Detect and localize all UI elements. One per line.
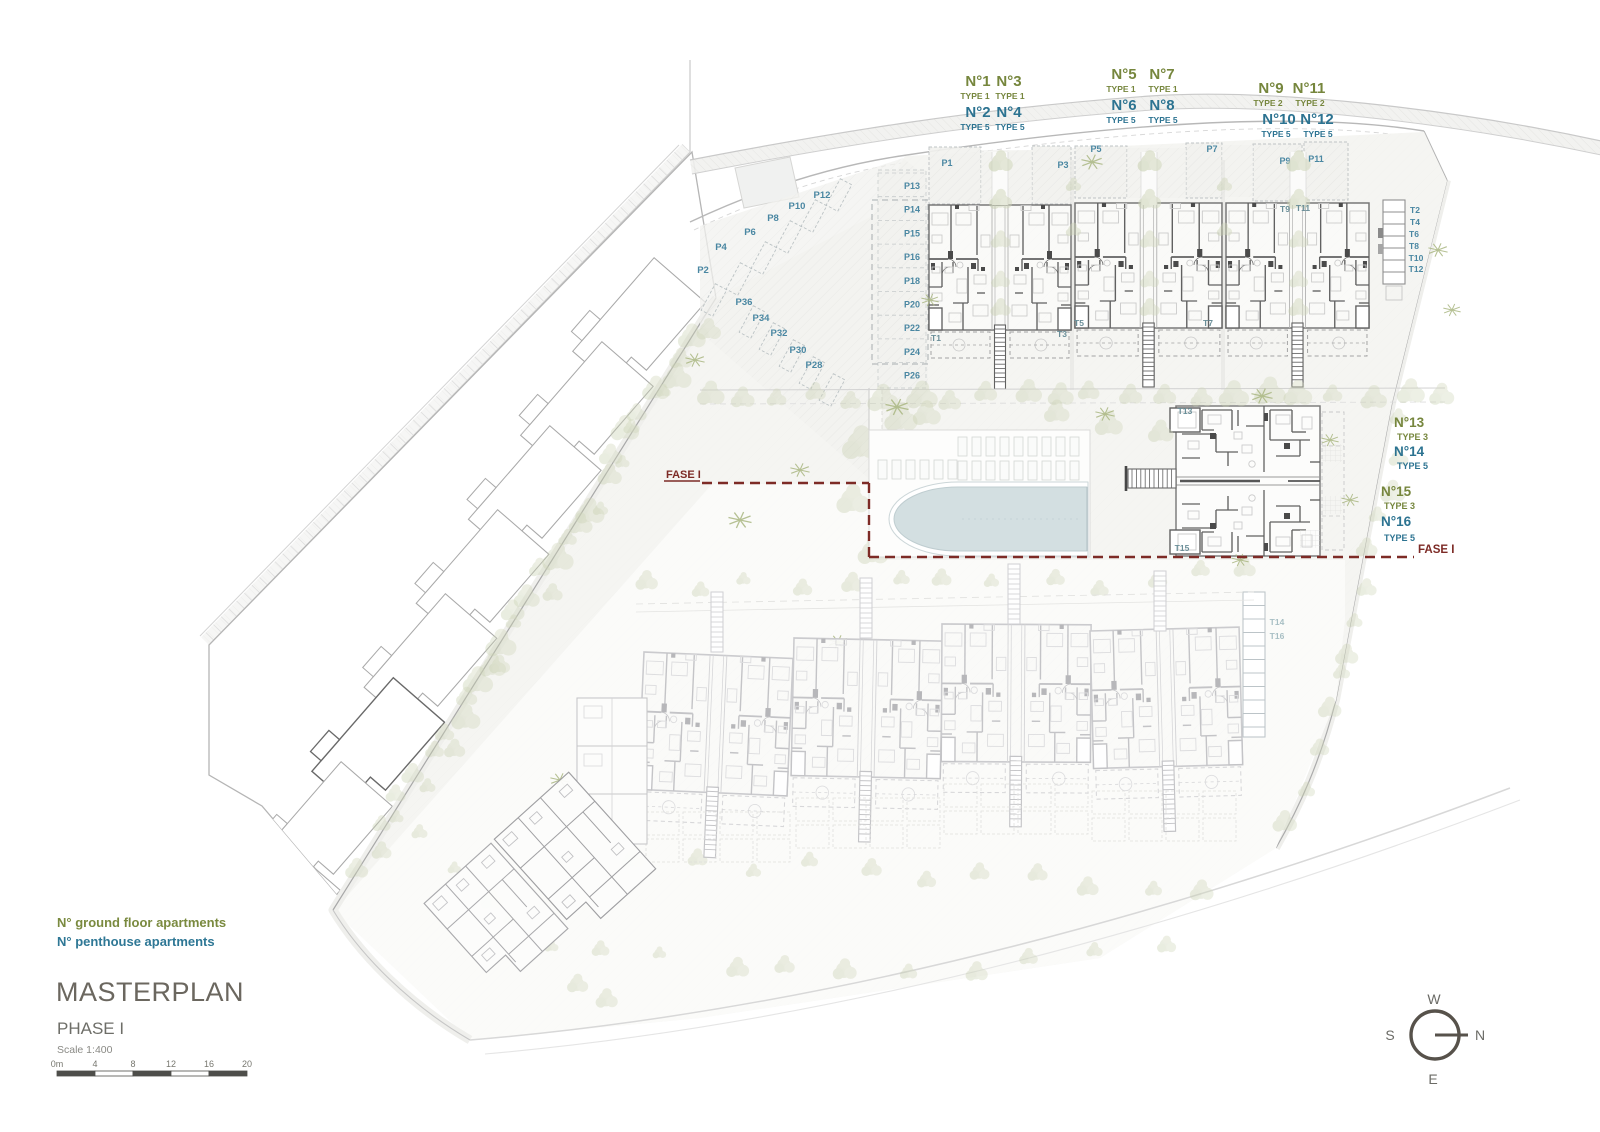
svg-text:Scale 1:400: Scale 1:400 [57, 1044, 113, 1056]
svg-text:16: 16 [204, 1059, 214, 1069]
svg-text:P5: P5 [1090, 144, 1101, 154]
svg-text:TYPE 1: TYPE 1 [960, 91, 990, 101]
svg-text:P7: P7 [1206, 144, 1217, 154]
svg-text:TYPE 1: TYPE 1 [995, 91, 1025, 101]
svg-text:8: 8 [130, 1059, 135, 1069]
svg-text:TYPE 5: TYPE 5 [995, 122, 1025, 132]
svg-text:N°11: N°11 [1293, 80, 1326, 97]
svg-text:T7: T7 [1203, 318, 1213, 328]
svg-text:P28: P28 [806, 360, 823, 371]
svg-text:TYPE 5: TYPE 5 [960, 122, 990, 132]
svg-text:P2: P2 [697, 265, 709, 276]
svg-text:T4: T4 [1410, 217, 1420, 227]
svg-text:S: S [1385, 1027, 1394, 1043]
svg-text:T11: T11 [1296, 203, 1310, 213]
svg-text:N°14: N°14 [1394, 444, 1425, 459]
svg-text:P26: P26 [904, 371, 920, 381]
svg-text:TYPE 3: TYPE 3 [1397, 432, 1428, 442]
svg-text:T9: T9 [1280, 204, 1290, 214]
svg-text:T8: T8 [1409, 241, 1419, 251]
svg-text:T13: T13 [1178, 406, 1193, 416]
svg-text:P14: P14 [904, 205, 920, 215]
svg-text:TYPE 5: TYPE 5 [1106, 115, 1136, 125]
svg-text:T12: T12 [1409, 264, 1424, 274]
svg-text:P3: P3 [1057, 160, 1068, 170]
svg-text:FASE I: FASE I [666, 469, 701, 481]
svg-text:N°6: N°6 [1111, 97, 1136, 114]
svg-text:T2: T2 [1410, 205, 1420, 215]
svg-text:P24: P24 [904, 347, 920, 357]
svg-text:PHASE I: PHASE I [57, 1019, 124, 1038]
svg-text:T14: T14 [1270, 617, 1285, 627]
svg-text:TYPE 5: TYPE 5 [1384, 533, 1415, 543]
svg-text:N°2: N°2 [965, 104, 990, 121]
svg-text:N° ground floor apartments: N° ground floor apartments [57, 915, 226, 930]
svg-text:N°10: N°10 [1262, 111, 1296, 128]
svg-text:P36: P36 [736, 297, 753, 308]
svg-text:P18: P18 [904, 276, 920, 286]
svg-text:T6: T6 [1409, 229, 1419, 239]
svg-text:P32: P32 [771, 328, 788, 339]
svg-text:0m: 0m [51, 1059, 64, 1069]
svg-text:P8: P8 [767, 213, 779, 224]
svg-text:P6: P6 [744, 227, 756, 238]
svg-text:P22: P22 [904, 323, 920, 333]
svg-text:MASTERPLAN: MASTERPLAN [56, 977, 244, 1007]
svg-text:P10: P10 [789, 201, 806, 212]
svg-text:T16: T16 [1270, 631, 1285, 641]
svg-text:N°12: N°12 [1300, 111, 1334, 128]
svg-text:T1: T1 [931, 333, 941, 343]
svg-text:N°9: N°9 [1258, 80, 1283, 97]
svg-text:N°8: N°8 [1149, 97, 1174, 114]
svg-text:TYPE 2: TYPE 2 [1253, 98, 1283, 108]
svg-text:P30: P30 [790, 345, 807, 356]
svg-text:TYPE 5: TYPE 5 [1397, 461, 1428, 471]
svg-text:P34: P34 [753, 313, 771, 324]
svg-text:4: 4 [92, 1059, 97, 1069]
svg-text:T10: T10 [1409, 253, 1424, 263]
svg-text:P12: P12 [814, 190, 831, 201]
svg-text:20: 20 [242, 1059, 252, 1069]
svg-text:TYPE 1: TYPE 1 [1148, 84, 1178, 94]
svg-text:N°1: N°1 [965, 73, 990, 90]
svg-text:E: E [1428, 1071, 1437, 1087]
svg-text:N°16: N°16 [1381, 514, 1412, 529]
svg-text:N° penthouse apartments: N° penthouse apartments [57, 934, 215, 949]
svg-text:12: 12 [166, 1059, 176, 1069]
svg-text:N: N [1475, 1027, 1485, 1043]
svg-text:P13: P13 [904, 181, 920, 191]
svg-text:N°5: N°5 [1111, 66, 1136, 83]
svg-text:TYPE 3: TYPE 3 [1384, 501, 1415, 511]
svg-text:P15: P15 [904, 228, 920, 238]
svg-text:TYPE 1: TYPE 1 [1106, 84, 1136, 94]
svg-text:FASE I: FASE I [1418, 544, 1454, 556]
svg-text:N°7: N°7 [1149, 66, 1174, 83]
svg-text:N°4: N°4 [996, 104, 1022, 121]
svg-text:T3: T3 [1057, 329, 1067, 339]
svg-text:TYPE 5: TYPE 5 [1303, 129, 1333, 139]
svg-text:TYPE 5: TYPE 5 [1261, 129, 1291, 139]
svg-text:TYPE 2: TYPE 2 [1295, 98, 1325, 108]
svg-text:N°3: N°3 [996, 73, 1021, 90]
svg-text:N°13: N°13 [1394, 415, 1425, 430]
svg-text:T15: T15 [1175, 543, 1190, 553]
svg-text:T5: T5 [1074, 318, 1084, 328]
svg-text:P20: P20 [904, 300, 920, 310]
svg-text:P4: P4 [715, 242, 727, 253]
svg-text:TYPE 5: TYPE 5 [1148, 115, 1178, 125]
svg-text:P1: P1 [941, 158, 952, 168]
svg-text:P11: P11 [1308, 154, 1324, 164]
svg-text:P16: P16 [904, 252, 920, 262]
svg-text:W: W [1427, 991, 1441, 1007]
svg-text:N°15: N°15 [1381, 484, 1412, 499]
